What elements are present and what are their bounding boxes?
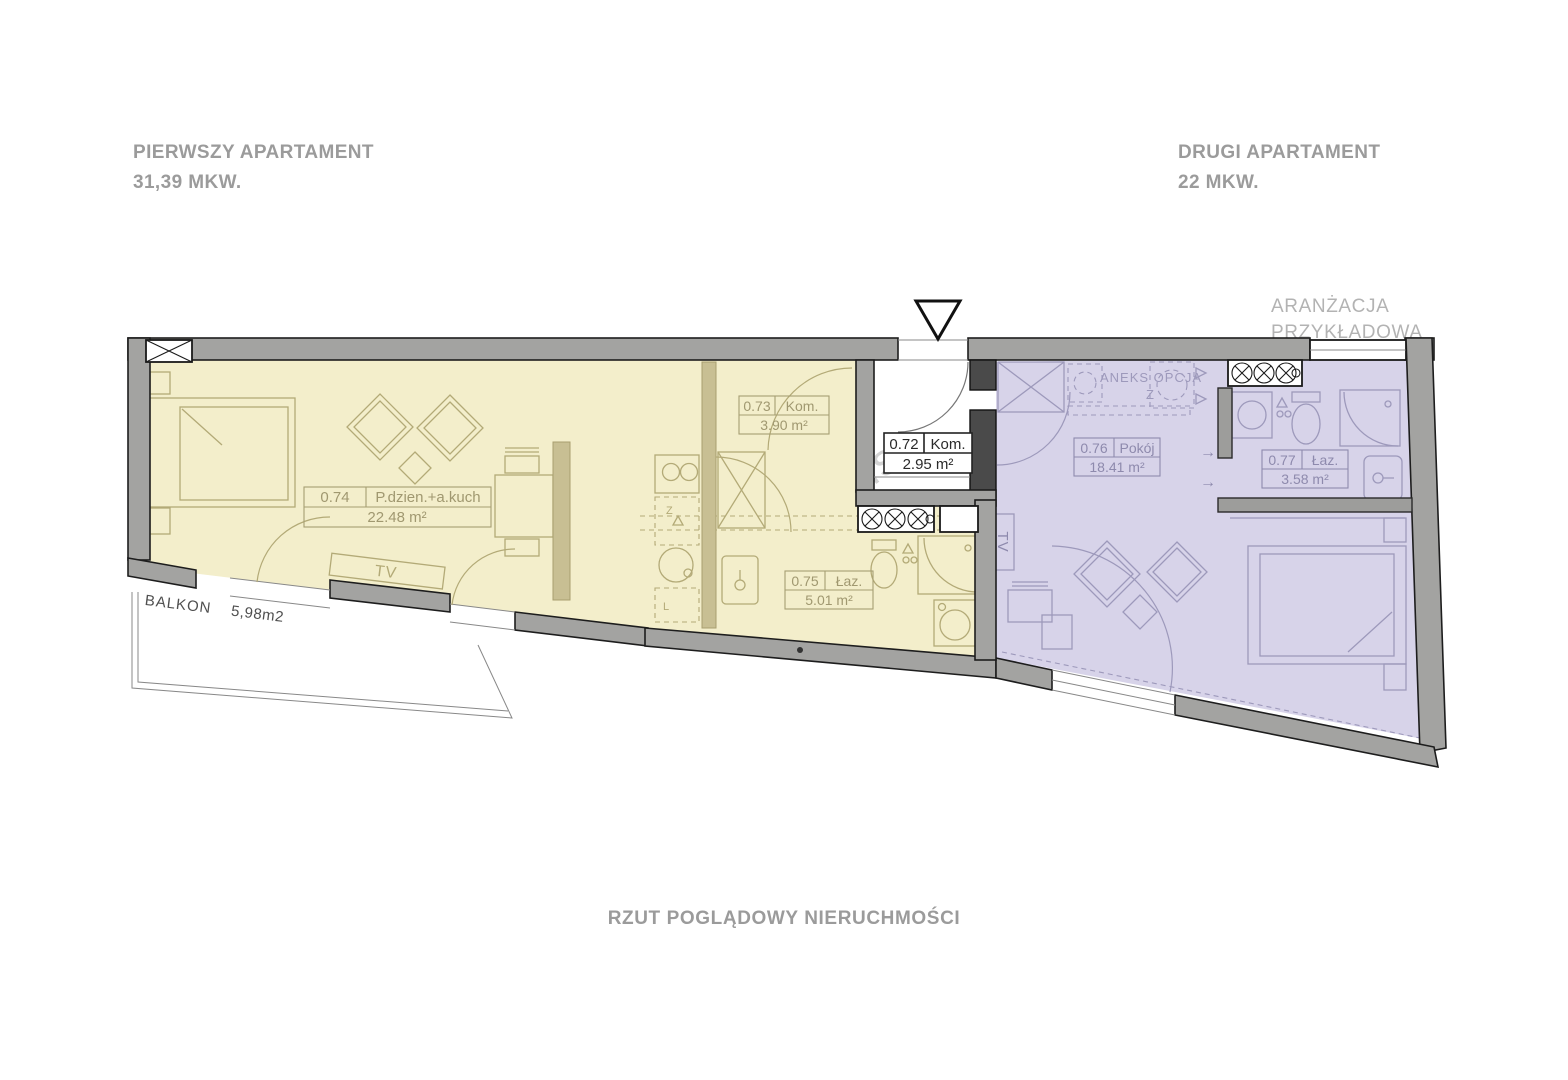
- bath077-bottom-wall: [1218, 498, 1412, 512]
- vestibule-right-wall-upper: [970, 360, 996, 390]
- room-number: 0.76: [1080, 440, 1107, 456]
- vestibule-right-wall-lower: [970, 410, 996, 498]
- corner-x-box: [146, 340, 192, 362]
- wardrobe-partition: [553, 442, 570, 600]
- room-label-072: 0.72 Kom. 2.95 m²: [884, 433, 972, 473]
- vent-dot: [797, 647, 803, 653]
- room-area: 3.90 m²: [760, 417, 808, 433]
- kitchen-sink-symbol: Z: [666, 505, 673, 517]
- balcony-outline: [132, 592, 512, 718]
- entry-door-arc: [898, 362, 968, 432]
- arrow-icon: →: [1200, 444, 1216, 461]
- kitchen-wall: [702, 362, 716, 628]
- arrow-icon: →: [1200, 474, 1216, 491]
- room-area: 5.01 m²: [805, 592, 853, 608]
- room-number: 0.72: [889, 436, 918, 453]
- bath077-left-wall: [1218, 388, 1232, 458]
- apartment2-fill: [996, 356, 1428, 740]
- room-area: 2.95 m²: [903, 456, 954, 473]
- radiator-icon-vestibule: [858, 506, 978, 532]
- tv-label-living: TV: [374, 563, 398, 583]
- vestibule-left-wall: [856, 360, 874, 492]
- room-area: 22.48 m²: [367, 509, 426, 526]
- top-wall-left: [128, 338, 898, 360]
- room-name: Łaz.: [836, 573, 862, 589]
- entrance-triangle-icon: [916, 301, 960, 339]
- entry-threshold: [898, 340, 968, 360]
- shelf: [940, 506, 978, 532]
- room-number: 0.77: [1268, 452, 1295, 468]
- room-number: 0.74: [320, 489, 349, 506]
- left-wall: [128, 338, 150, 560]
- room-area: 3.58 m²: [1281, 471, 1329, 487]
- annex-label: ANEKS OPCJA: [1100, 370, 1202, 385]
- radiator-icon-a2: [1228, 360, 1302, 386]
- kitchen-fridge-symbol: L: [663, 601, 669, 613]
- room-name: Łaz.: [1312, 452, 1338, 468]
- room-number: 0.75: [791, 573, 818, 589]
- room-area: 18.41 m²: [1089, 459, 1145, 475]
- room-number: 0.73: [743, 398, 770, 414]
- room-name: P.dzien.+a.kuch: [375, 489, 480, 506]
- floorplan-drawing: TV Z L: [0, 0, 1568, 1080]
- room-name: Kom.: [930, 436, 965, 453]
- floorplan-page: PIERWSZY APARTAMENT 31,39 MKW. DRUGI APA…: [0, 0, 1568, 1080]
- annex-symbol: Z: [1146, 387, 1155, 402]
- top-wall-mid: [968, 338, 1310, 360]
- room-name: Pokój: [1119, 440, 1154, 456]
- room-name: Kom.: [786, 398, 819, 414]
